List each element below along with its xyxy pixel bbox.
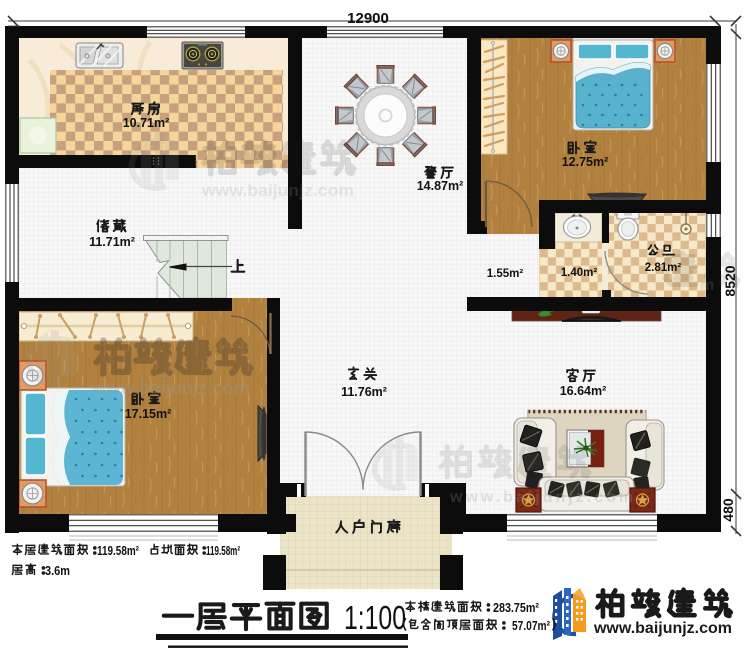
svg-text:119.58m²: 119.58m² [206,544,240,558]
svg-text:12.75m²: 12.75m² [562,155,609,169]
svg-text:www.baijunjz.com: www.baijunjz.com [449,489,636,506]
svg-text:11.76m²: 11.76m² [341,385,387,399]
svg-text:480: 480 [720,498,736,522]
svg-text:1.55m²: 1.55m² [487,268,524,280]
svg-text:14.87m²: 14.87m² [417,179,464,193]
svg-text:www.baijunjz.com: www.baijunjz.com [201,181,354,200]
svg-text:283.75m²: 283.75m² [493,601,539,615]
svg-text:www.baijunjz.com: www.baijunjz.com [91,378,250,398]
svg-text:10.71m²: 10.71m² [123,116,170,130]
svg-text:3.6m: 3.6m [45,564,70,578]
svg-text:1.40m²: 1.40m² [561,267,598,279]
svg-text:m: m [700,277,717,294]
svg-text:www.baijunjz.com: www.baijunjz.com [593,620,732,637]
svg-text:17.15m²: 17.15m² [125,407,172,421]
svg-text:12900: 12900 [347,10,389,27]
svg-text:57.07m²: 57.07m² [512,619,550,633]
svg-text:11.71m²: 11.71m² [89,235,135,249]
svg-text:16.64m²: 16.64m² [560,384,607,398]
svg-text:1:100: 1:100 [344,599,406,636]
svg-text:119.58m²: 119.58m² [97,544,139,558]
